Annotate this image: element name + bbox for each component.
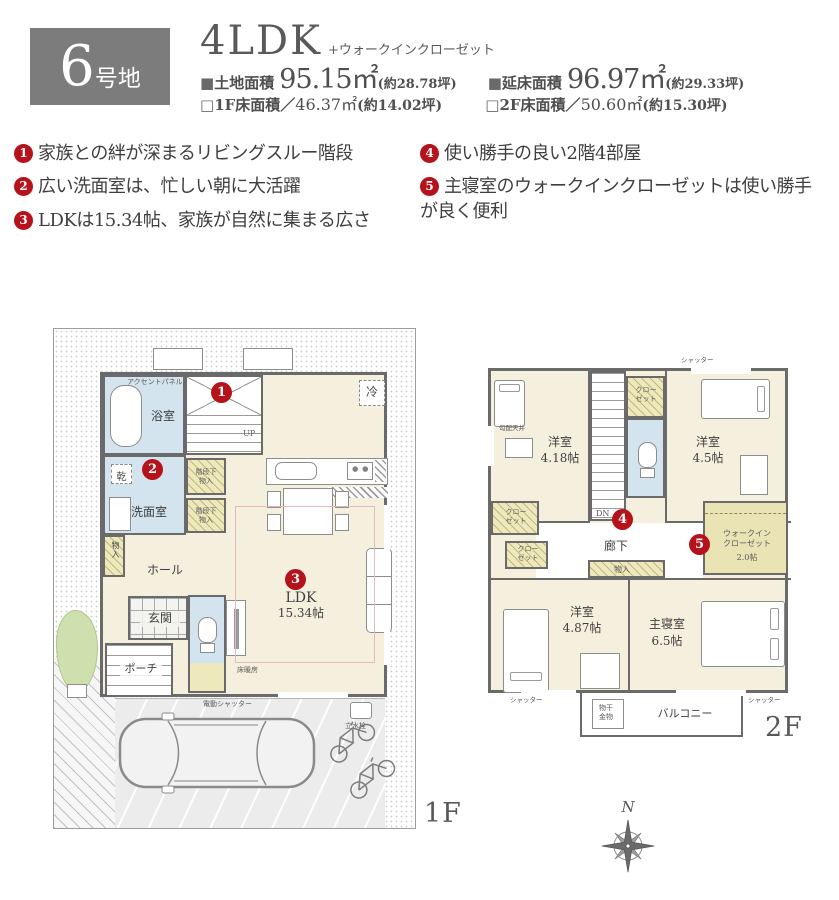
feature-badge-4: 4 — [420, 144, 439, 163]
wall — [588, 371, 590, 521]
compass-north-label: N — [598, 798, 658, 816]
bathroom: アクセントパネル 浴室 — [103, 375, 185, 455]
eave-window-1 — [153, 348, 203, 370]
feature-badge-2: 2 — [14, 177, 33, 196]
feature-item-3: 3LDKは15.34帖、家族が自然に集まる広さ — [14, 209, 416, 233]
desk — [580, 653, 620, 689]
wic-size: 2.0帖 — [719, 553, 775, 563]
window — [676, 690, 746, 696]
outline-square-icon: □ — [485, 96, 499, 114]
toilet-tank — [640, 468, 655, 478]
desk — [505, 438, 533, 458]
pillow — [510, 672, 542, 681]
area-label: 延床面積 — [502, 74, 562, 92]
up-label: UP — [243, 429, 255, 439]
bed — [503, 609, 549, 693]
total-floor-area: ■延床面積 96.97㎡(約29.33坪) — [488, 73, 745, 92]
western-room1-size: 4.18帖 — [535, 451, 585, 467]
compass: N — [598, 798, 658, 874]
porch-label: ポーチ — [120, 662, 162, 676]
area-value: 50.60㎡ — [581, 95, 643, 114]
window — [488, 426, 494, 466]
feature-item-2: 2広い洗面室は、忙しい朝に大活躍 — [14, 175, 416, 199]
master-bedroom-size: 6.5帖 — [639, 634, 695, 650]
pillow — [499, 384, 520, 392]
genkan: 玄関 — [128, 596, 188, 640]
balcony-label: バルコニー — [640, 707, 730, 721]
kitchen-counter — [266, 458, 388, 485]
feature-text: 広い洗面室は、忙しい朝に大活躍 — [38, 176, 301, 197]
wall — [665, 371, 667, 521]
filled-square-icon: ■ — [200, 74, 214, 92]
area-note: (約28.78坪) — [378, 77, 457, 92]
refrigerator: 冷 — [359, 380, 385, 406]
stairs-2f: DN — [590, 371, 626, 521]
wic-label: ウォークイン クローゼット — [719, 529, 775, 549]
corridor-label: 廊下 — [591, 539, 641, 555]
house-2f: 勾配天井 洋室 4.18帖 DN クロー ゼット 洋室 4.5帖 — [488, 368, 788, 693]
ldk-label: LDK — [271, 589, 331, 607]
bed — [494, 380, 525, 427]
area-note: (約15.30坪) — [642, 98, 727, 114]
feature-marker-3: 3 — [285, 569, 306, 590]
toilet-storage — [190, 663, 224, 691]
feature-item-4: 4使い勝手の良い2階4部屋 — [420, 142, 828, 166]
floor-heating-label: 床暖房 — [237, 666, 258, 675]
feature-list-left: 1家族との絆が深まるリビングスルー階段 2広い洗面室は、忙しい朝に大活躍 3LD… — [14, 142, 416, 242]
master-bedroom-label: 主寝室 — [639, 617, 695, 633]
lot-number-box: 6 号地 — [30, 28, 170, 105]
area-note: (約14.02坪) — [357, 98, 442, 114]
porch: ポーチ — [105, 643, 173, 697]
floor-label-2f: 2F — [765, 712, 803, 743]
closet-top: クロー ゼット — [626, 376, 665, 418]
area-label: 1F床面積／ — [214, 96, 295, 114]
lot-number: 6 — [59, 39, 95, 95]
under-stair-storage-1: 階段下 物入 — [186, 458, 226, 495]
plan-1f: アクセントパネル 浴室 UP 冷 乾 — [53, 328, 416, 829]
toilet-2f — [626, 418, 665, 498]
western-room2-label: 洋室 — [683, 435, 733, 451]
kitchen-sink — [275, 462, 317, 480]
area-row-floors: □1F床面積／46.37㎡(約14.02坪) □2F床面積／50.60㎡(約15… — [200, 91, 753, 115]
laundry-hardware-label: 物干 金物 — [599, 704, 613, 722]
storage-label: 階段下 物入 — [192, 468, 220, 486]
meter-box — [67, 684, 87, 698]
shutter-label-bottom-right: シャッター — [748, 696, 781, 704]
shutter-label-top: シャッター — [681, 356, 714, 364]
ldk-size-label: 15.34帖 — [266, 606, 336, 622]
eave-window-2 — [243, 348, 293, 370]
land-area: ■土地面積 95.15㎡(約28.78坪) — [200, 73, 457, 92]
hall-label: ホール — [140, 563, 190, 579]
feature-item-1: 1家族との絆が深まるリビングスルー階段 — [14, 142, 416, 166]
house-1f: アクセントパネル 浴室 UP 冷 乾 — [100, 372, 387, 697]
area-value: 46.37㎡ — [295, 95, 357, 114]
dn-label: DN — [596, 509, 609, 519]
toilet-bowl — [638, 442, 657, 468]
closet-label: クロー ゼット — [633, 386, 659, 404]
bed — [701, 379, 770, 419]
washroom-label: 洗面室 — [123, 505, 175, 521]
hall-storage: 物入 — [103, 535, 125, 577]
lot-suffix: 号地 — [95, 59, 141, 93]
desk — [740, 455, 768, 495]
floor1-area: □1F床面積／46.37㎡(約14.02坪) — [200, 95, 442, 114]
feature-text: LDKは15.34帖、家族が自然に集まる広さ — [38, 210, 370, 231]
storage-label: 物入 — [110, 541, 121, 559]
filled-square-icon: ■ — [488, 74, 502, 92]
car-icon — [116, 711, 318, 795]
shutter-label-bottom-left: シャッター — [510, 696, 543, 704]
closet-label: クロー ゼット — [503, 508, 529, 526]
floor-label-1f: 1F — [424, 798, 462, 829]
window — [384, 505, 390, 553]
bath-label: 浴室 — [143, 409, 183, 425]
sloped-ceiling-label: 勾配天井 — [499, 424, 525, 432]
storage-label: 階段下 物入 — [192, 507, 220, 525]
feature-marker-5: 5 — [689, 534, 710, 555]
feature-marker-1: 1 — [211, 382, 232, 403]
closet-label: クロー ゼット — [515, 545, 541, 563]
corridor-storage: 物入 — [588, 560, 665, 578]
pillow — [770, 608, 779, 630]
dryer-label: 乾 — [117, 472, 127, 483]
fridge-label: 冷 — [366, 385, 378, 399]
feature-list-right: 4使い勝手の良い2階4部屋 5主寝室のウォークインクローゼットは使い勝手が良く便… — [420, 142, 828, 233]
bathtub — [110, 385, 142, 447]
compass-rose-icon — [600, 818, 656, 874]
toilet-1f — [188, 595, 226, 693]
walk-in-closet: ウォークイン クローゼット 2.0帖 — [703, 501, 788, 575]
stove — [347, 462, 373, 480]
western-room2-size: 4.5帖 — [683, 451, 733, 467]
area-note: (約29.33坪) — [665, 77, 744, 92]
feature-badge-5: 5 — [420, 177, 439, 196]
shutter-label-1f: 電動シャッター — [203, 700, 252, 709]
laundry-hardware-box: 物干 金物 — [592, 699, 624, 729]
hanger-pipe — [705, 513, 786, 514]
storage-label: 物入 — [614, 565, 630, 575]
closet-left-2: クロー ゼット — [505, 541, 548, 569]
under-stair-storage-2: 階段下 物入 — [186, 498, 226, 533]
wall — [491, 578, 791, 580]
feature-text: 使い勝手の良い2階4部屋 — [444, 143, 641, 164]
feature-badge-1: 1 — [14, 144, 33, 163]
window — [691, 368, 751, 374]
accent-panel-label: アクセントパネル — [127, 378, 183, 387]
pillow — [770, 638, 779, 660]
toilet-bowl — [198, 617, 217, 643]
wall — [628, 578, 630, 696]
closet-left-1: クロー ゼット — [491, 501, 539, 535]
window — [384, 610, 390, 665]
window — [278, 692, 348, 698]
feature-marker-4: 4 — [612, 509, 633, 530]
floor-heating-area — [235, 506, 375, 663]
western-room1-label: 洋室 — [535, 435, 585, 451]
feature-marker-2: 2 — [142, 459, 163, 480]
genkan-label: 玄関 — [140, 611, 180, 627]
counter-hatch — [375, 460, 386, 482]
western-room3-label: 洋室 — [557, 605, 607, 621]
pillow — [757, 386, 765, 412]
dryer-box: 乾 — [111, 464, 132, 484]
bed — [701, 601, 785, 667]
plan-2f: シャッター 勾配天井 洋室 4.18帖 DN クロー ゼット 洋 — [486, 352, 818, 752]
floor-plan-sheet: 6 号地 4LDK+ウォークインクローゼット ■土地面積 95.15㎡(約28.… — [0, 0, 839, 900]
feature-text: 家族との絆が深まるリビングスルー階段 — [38, 143, 353, 164]
feature-item-5: 5主寝室のウォークインクローゼットは使い勝手が良く便利 — [420, 175, 828, 224]
area-label: 2F床面積／ — [499, 96, 580, 114]
outline-square-icon: □ — [200, 96, 214, 114]
balcony: 物干 金物 バルコニー — [580, 693, 743, 737]
layout-note: +ウォークインクローゼット — [328, 43, 495, 58]
feature-badge-3: 3 — [14, 211, 33, 230]
western-room3-size: 4.87帖 — [553, 621, 611, 637]
area-label: 土地面積 — [214, 74, 274, 92]
feature-text: 主寝室のウォークインクローゼットは使い勝手が良く便利 — [420, 176, 812, 221]
toilet-tank — [200, 643, 215, 653]
floor2-area: □2F床面積／50.60㎡(約15.30坪) — [485, 95, 727, 114]
window — [521, 690, 576, 696]
